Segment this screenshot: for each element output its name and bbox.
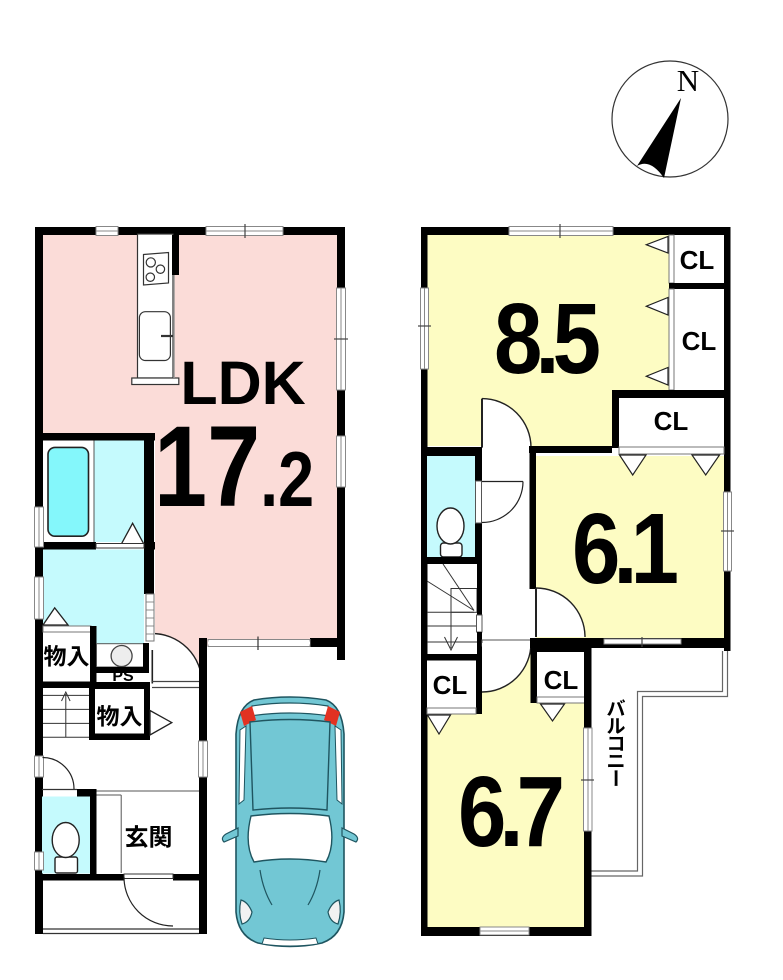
svg-text:CL: CL	[680, 245, 715, 275]
svg-text:8.5: 8.5	[494, 282, 599, 394]
svg-text:CL: CL	[433, 670, 468, 700]
svg-text:6.7: 6.7	[458, 755, 561, 867]
svg-text:CL: CL	[682, 326, 717, 356]
svg-text:6.1: 6.1	[572, 492, 677, 604]
svg-text:CL: CL	[654, 406, 689, 436]
svg-text:N: N	[677, 63, 699, 98]
svg-text:CL: CL	[544, 665, 579, 695]
